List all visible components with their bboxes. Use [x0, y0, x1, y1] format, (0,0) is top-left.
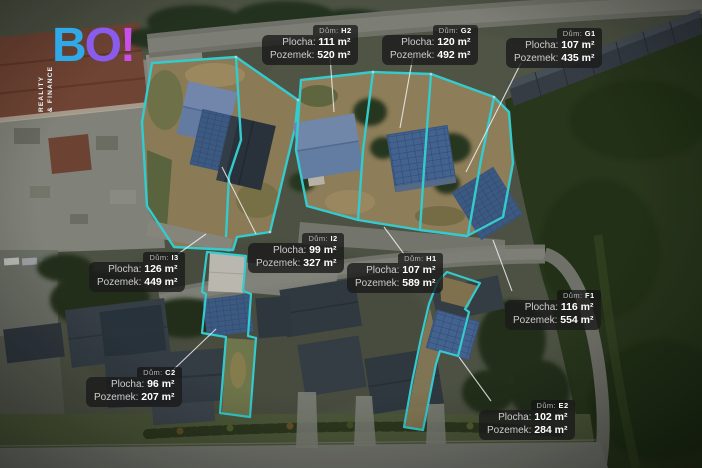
- brand-letter-o: O: [85, 19, 120, 72]
- real-estate-aerial-overview: REALITY & FINANCE BO! Dům: H2 Plocha: 11…: [0, 0, 702, 468]
- brand-wordmark: BO!: [52, 22, 134, 70]
- brand-letter-b: B: [52, 19, 85, 72]
- brand-tagline-line1: REALITY: [38, 48, 46, 112]
- brand-letter-bang: !: [120, 19, 134, 72]
- brand-logo: REALITY & FINANCE BO!: [34, 20, 184, 115]
